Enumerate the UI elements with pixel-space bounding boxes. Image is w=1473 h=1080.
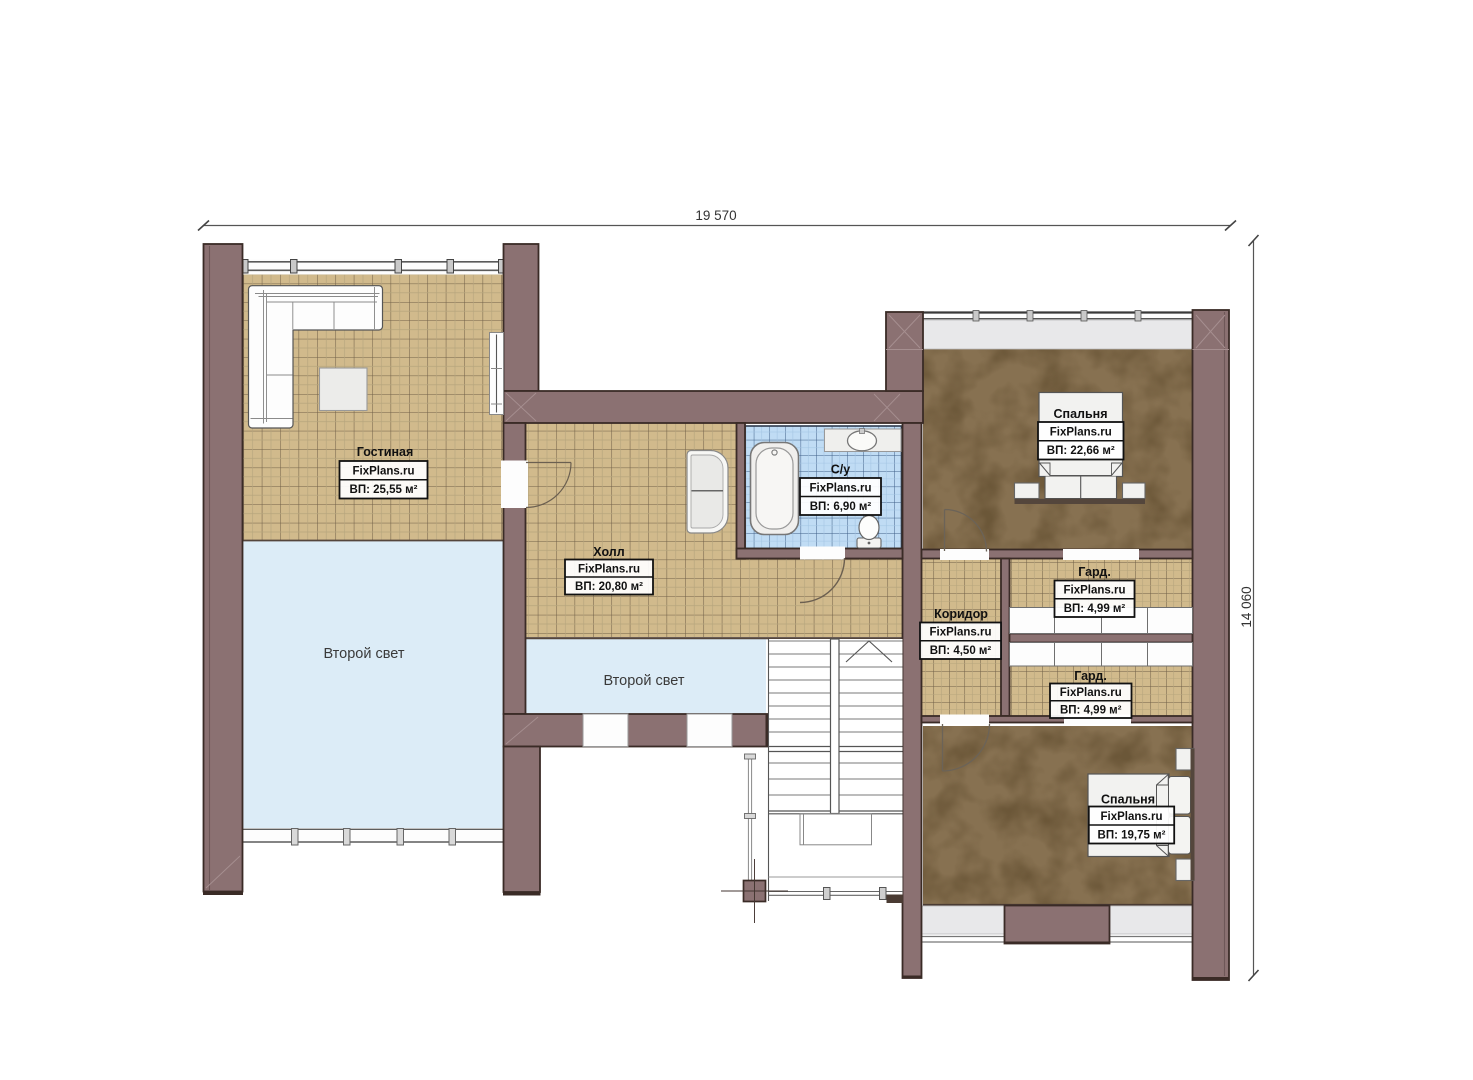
svg-text:С/у: С/у (831, 463, 851, 477)
svg-text:Гостиная: Гостиная (357, 445, 414, 459)
svg-text:Гард.: Гард. (1078, 565, 1111, 579)
svg-text:FixPlans.ru: FixPlans.ru (1101, 811, 1163, 823)
svg-text:FixPlans.ru: FixPlans.ru (1064, 585, 1126, 597)
svg-text:FixPlans.ru: FixPlans.ru (810, 482, 872, 494)
svg-text:Второй свет: Второй свет (323, 646, 404, 662)
svg-text:ВП: 25,55 м²: ВП: 25,55 м² (350, 484, 418, 496)
svg-text:14 060: 14 060 (1239, 586, 1254, 627)
svg-text:FixPlans.ru: FixPlans.ru (353, 465, 415, 477)
svg-text:FixPlans.ru: FixPlans.ru (578, 563, 640, 575)
svg-text:ВП: 20,80 м²: ВП: 20,80 м² (575, 581, 643, 593)
svg-text:ВП: 22,66 м²: ВП: 22,66 м² (1047, 445, 1115, 457)
svg-text:ВП: 4,50 м²: ВП: 4,50 м² (930, 645, 992, 657)
svg-text:Спальня: Спальня (1101, 793, 1155, 807)
svg-text:Коридор: Коридор (934, 607, 988, 621)
svg-text:ВП: 4,99 м²: ВП: 4,99 м² (1060, 704, 1122, 716)
svg-text:Второй свет: Второй свет (603, 673, 684, 689)
svg-text:ВП: 19,75 м²: ВП: 19,75 м² (1098, 829, 1166, 841)
svg-text:ВП: 6,90 м²: ВП: 6,90 м² (810, 501, 872, 513)
svg-text:19 570: 19 570 (695, 208, 736, 223)
svg-text:Холл: Холл (593, 545, 624, 559)
svg-text:FixPlans.ru: FixPlans.ru (1050, 426, 1112, 438)
svg-text:FixPlans.ru: FixPlans.ru (930, 627, 992, 639)
svg-text:Гард.: Гард. (1074, 669, 1107, 683)
svg-text:ВП: 4,99 м²: ВП: 4,99 м² (1064, 603, 1126, 615)
svg-text:Спальня: Спальня (1054, 407, 1108, 421)
svg-text:FixPlans.ru: FixPlans.ru (1060, 687, 1122, 699)
